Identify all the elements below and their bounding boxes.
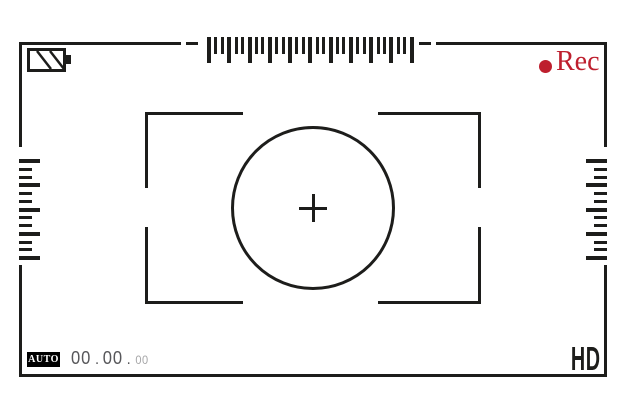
focus-frame-top-right: [378, 112, 481, 115]
frame-top-right-segment: [436, 42, 607, 45]
exposure-ruler-top: [207, 37, 414, 63]
top-ruler-tick: [410, 37, 414, 63]
frame-top-left-dash: [186, 42, 198, 45]
top-ruler-tick: [288, 37, 292, 63]
frame-left-lower-segment: [19, 265, 22, 377]
frame-right-upper-segment: [604, 42, 607, 147]
focus-frame-right-upper: [478, 112, 481, 188]
crosshair-icon: [312, 194, 315, 222]
left-ruler-tick: [19, 168, 32, 171]
top-ruler-tick: [227, 37, 231, 63]
right-ruler-tick: [594, 168, 607, 171]
hd-quality-label: HD: [571, 344, 601, 374]
left-ruler-tick: [19, 224, 32, 227]
record-dot-icon: [539, 60, 552, 73]
left-ruler-tick: [19, 176, 32, 179]
left-ruler-tick: [19, 216, 32, 219]
left-ruler-tick: [19, 256, 40, 260]
top-ruler-tick: [349, 37, 353, 63]
top-ruler-tick: [255, 37, 258, 54]
top-ruler-tick: [356, 37, 359, 54]
top-ruler-tick: [275, 37, 278, 54]
right-ruler-tick: [594, 192, 607, 195]
right-ruler-tick: [586, 159, 607, 163]
right-ruler-tick: [594, 224, 607, 227]
timecode-separator: .: [95, 351, 99, 369]
timecode-separator: .: [127, 351, 131, 369]
frame-right-lower-segment: [604, 265, 607, 377]
right-ruler-tick: [586, 208, 607, 212]
timecode-hours: 00: [71, 349, 91, 367]
right-ruler-tick: [594, 200, 607, 203]
timecode-minutes: 00: [103, 349, 123, 367]
left-ruler-tick: [19, 232, 40, 236]
top-ruler-tick: [308, 37, 312, 63]
top-ruler-tick: [282, 37, 285, 54]
top-ruler-tick: [214, 37, 217, 54]
focus-frame-bottom-right: [378, 301, 481, 304]
camera-viewfinder: Rec AUTO 00 . 00 . 00 HD: [0, 0, 626, 418]
right-ruler-tick: [594, 248, 607, 251]
focus-frame-top-left: [145, 112, 243, 115]
top-ruler-tick: [322, 37, 325, 54]
left-ruler-tick: [19, 183, 40, 187]
top-ruler-tick: [336, 37, 339, 54]
left-ruler-tick: [19, 248, 32, 251]
top-ruler-tick: [268, 37, 272, 63]
top-ruler-tick: [316, 37, 319, 54]
top-ruler-tick: [342, 37, 345, 54]
frame-left-upper-segment: [19, 42, 22, 147]
top-ruler-tick: [261, 37, 264, 54]
right-ruler-tick: [594, 176, 607, 179]
ruler-left: [19, 159, 40, 260]
rec-label: Rec: [556, 47, 600, 77]
top-ruler-tick: [302, 37, 305, 54]
left-ruler-tick: [19, 159, 40, 163]
rec-indicator[interactable]: Rec: [539, 47, 600, 77]
focus-frame-left-upper: [145, 112, 148, 188]
top-ruler-tick: [403, 37, 406, 54]
right-ruler-tick: [586, 183, 607, 187]
frame-bottom-edge: [19, 374, 607, 377]
top-ruler-tick: [363, 37, 366, 54]
top-ruler-tick: [241, 37, 244, 54]
right-ruler-tick: [594, 216, 607, 219]
ruler-right: [586, 159, 607, 260]
focus-frame-bottom-left: [145, 301, 243, 304]
left-ruler-tick: [19, 192, 32, 195]
top-ruler-tick: [235, 37, 238, 54]
left-ruler-tick: [19, 208, 40, 212]
top-ruler-tick: [389, 37, 393, 63]
focus-frame-right-lower: [478, 227, 481, 304]
left-ruler-tick: [19, 241, 32, 244]
right-ruler-tick: [586, 256, 607, 260]
top-ruler-tick: [329, 37, 333, 63]
auto-mode-badge[interactable]: AUTO: [27, 352, 60, 367]
right-ruler-tick: [594, 241, 607, 244]
top-ruler-tick: [369, 37, 373, 63]
frame-top-left-segment: [19, 42, 181, 45]
top-ruler-tick: [221, 37, 224, 54]
top-ruler-tick: [207, 37, 211, 63]
top-ruler-tick: [397, 37, 400, 54]
focus-frame-left-lower: [145, 227, 148, 304]
top-ruler-tick: [377, 37, 380, 54]
battery-icon: [27, 48, 71, 72]
top-ruler-tick: [383, 37, 386, 54]
top-ruler-tick: [295, 37, 298, 54]
top-ruler-tick: [248, 37, 252, 63]
left-ruler-tick: [19, 200, 32, 203]
frame-top-right-dash: [419, 42, 431, 45]
timecode-seconds: 00: [135, 354, 148, 366]
timecode: 00 . 00 . 00: [71, 349, 149, 369]
right-ruler-tick: [586, 232, 607, 236]
